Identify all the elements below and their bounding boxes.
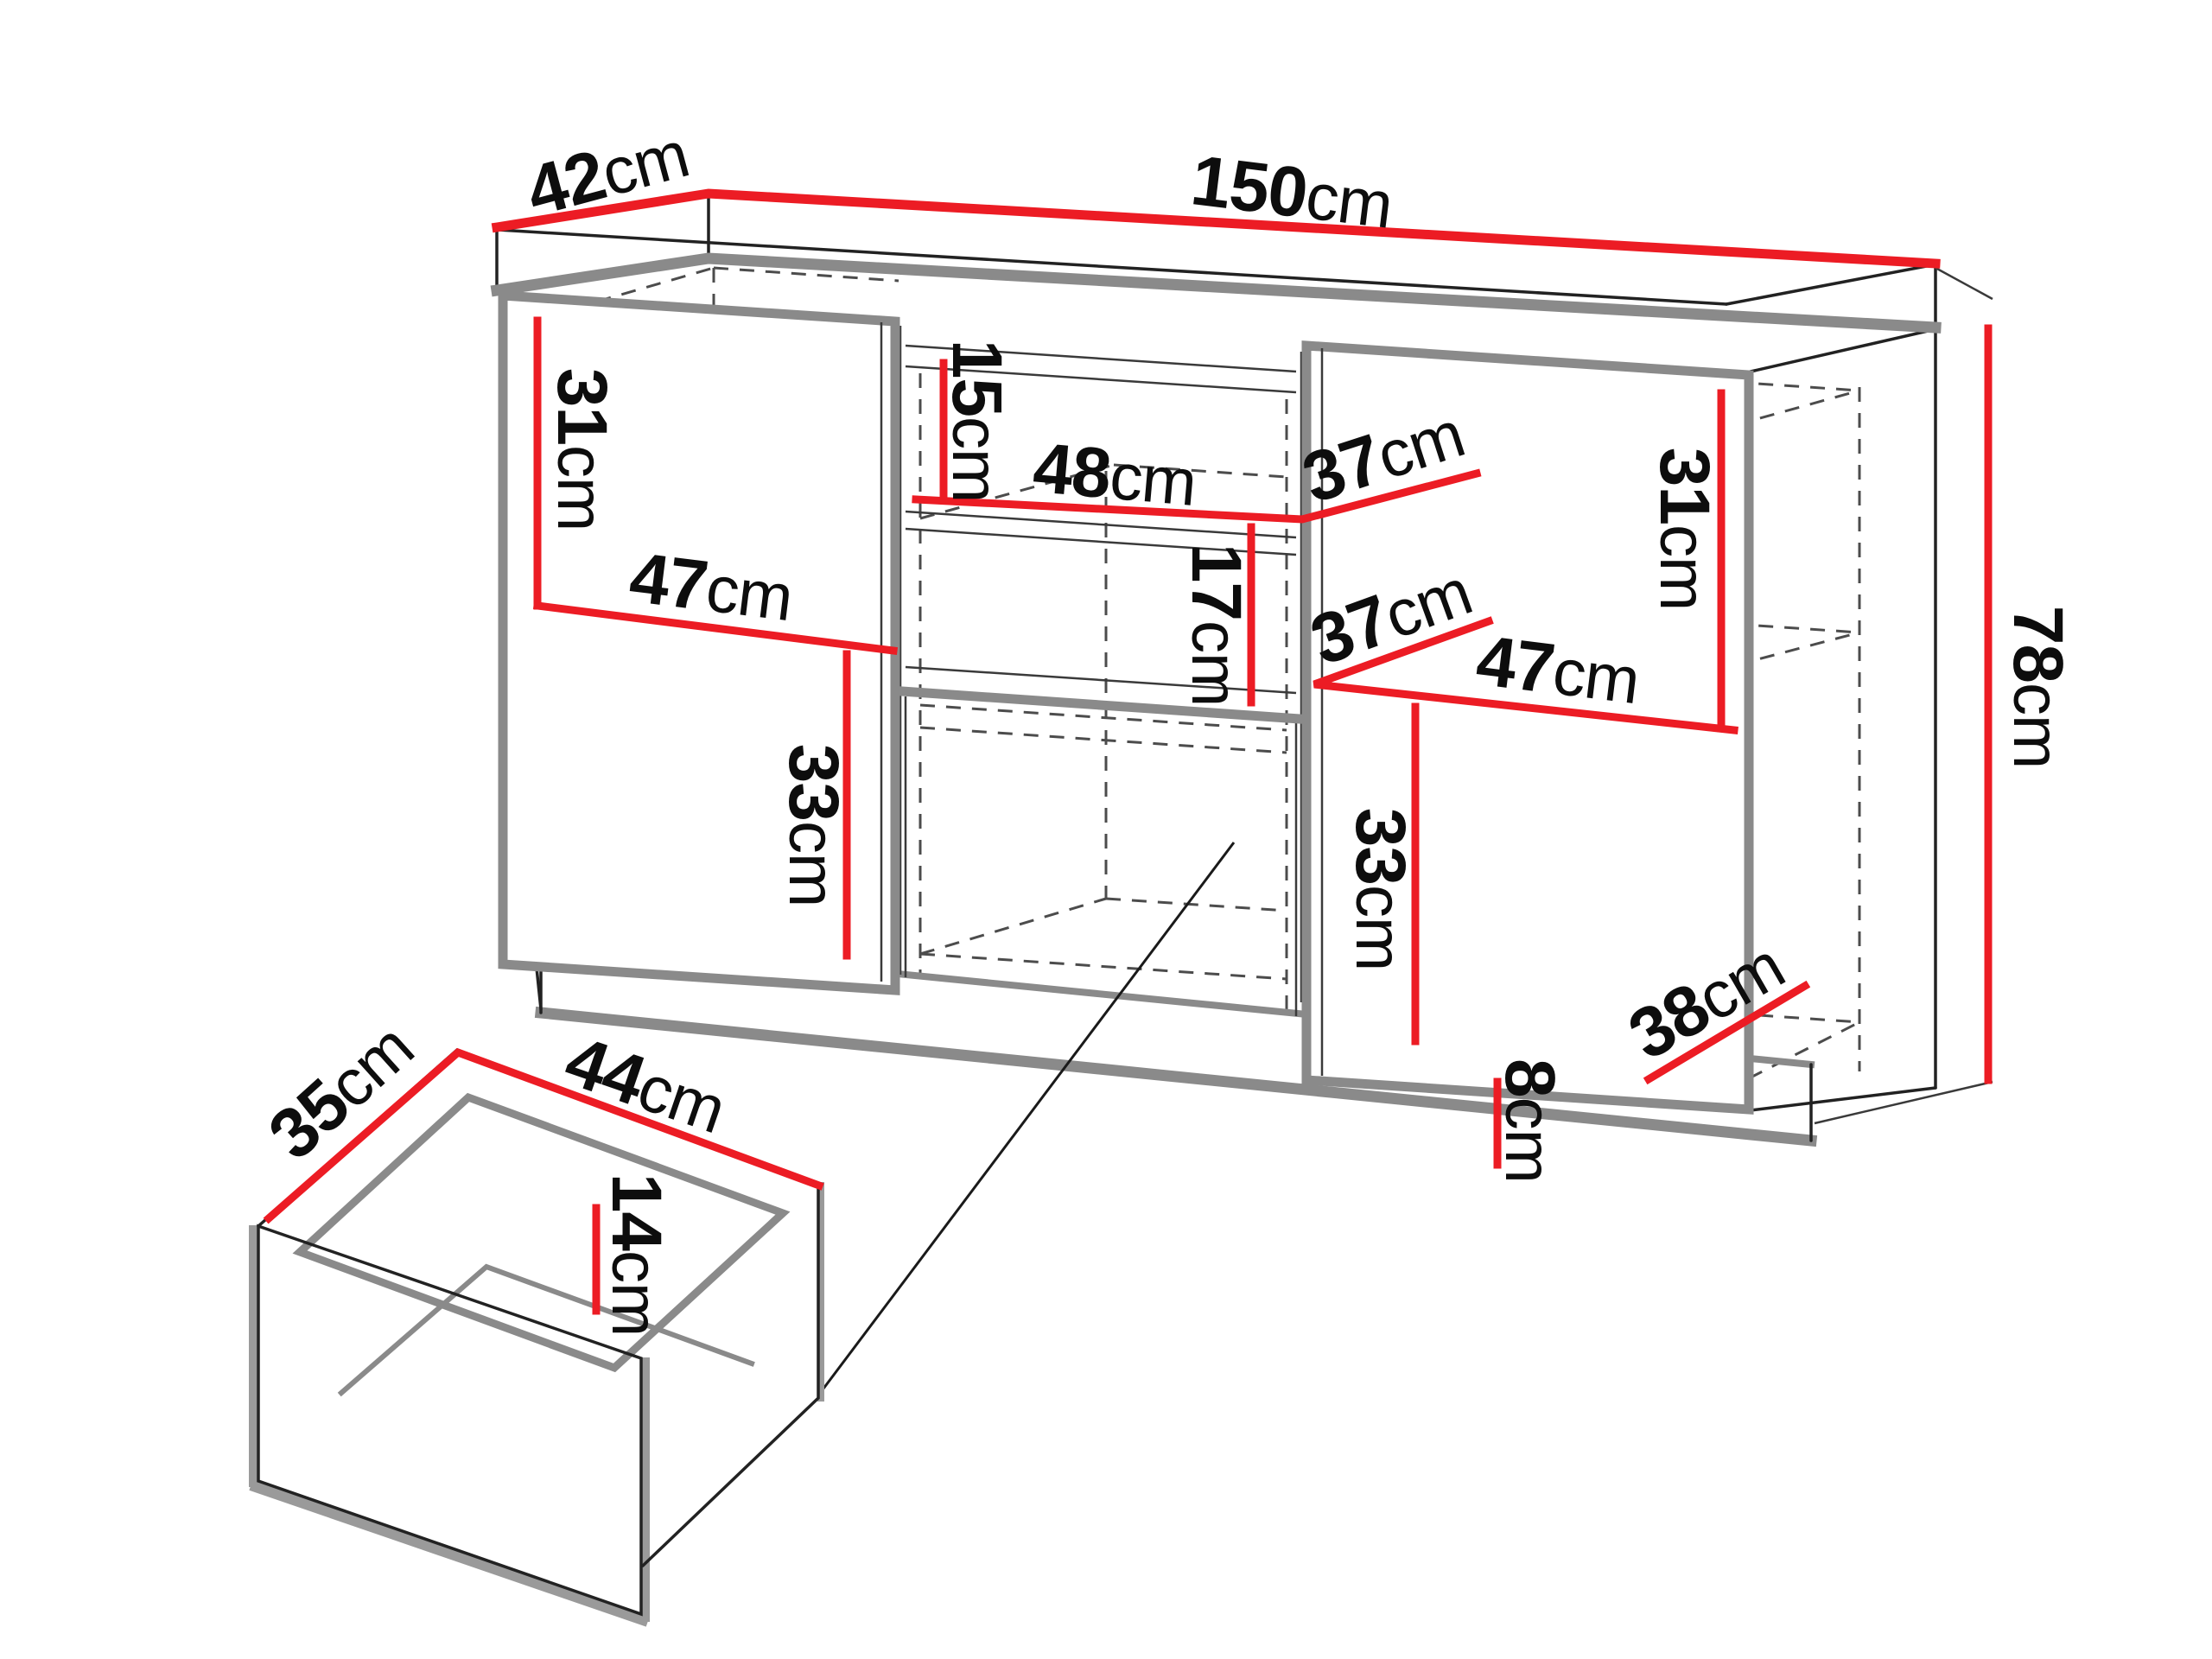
dim-label-15: 15cm [941, 340, 1012, 503]
dim-label-48: 48cm [1031, 433, 1199, 518]
dim-label-plinth-8: 8cm [1494, 1058, 1565, 1183]
dim-label-31-right: 31cm [1649, 448, 1719, 611]
dim-label-33-left: 33cm [778, 744, 849, 907]
furniture-dimension-diagram: 42cm 150cm 31cm 47cm 15cm 48cm 37cm 17cm… [0, 0, 2212, 1659]
right-side-top-edge [1751, 329, 1935, 372]
dim-label-33-right: 33cm [1344, 808, 1415, 971]
dim-label-drawer-14: 14cm [601, 1173, 671, 1337]
dim-label-17: 17cm [1180, 543, 1251, 707]
dim-label-height-78: 78cm [2002, 606, 2073, 769]
cabinet-line-art [0, 0, 2212, 1659]
dim-label-31-left: 31cm [546, 368, 617, 531]
